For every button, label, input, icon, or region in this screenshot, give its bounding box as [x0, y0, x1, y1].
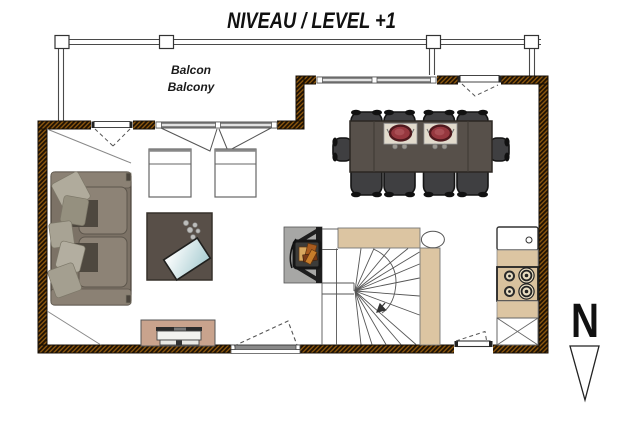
svg-text:N: N — [571, 294, 599, 348]
svg-text:Balcony: Balcony — [168, 80, 216, 94]
svg-text:Balcon: Balcon — [171, 63, 211, 77]
svg-text:NIVEAU / LEVEL +1: NIVEAU / LEVEL +1 — [227, 9, 396, 33]
